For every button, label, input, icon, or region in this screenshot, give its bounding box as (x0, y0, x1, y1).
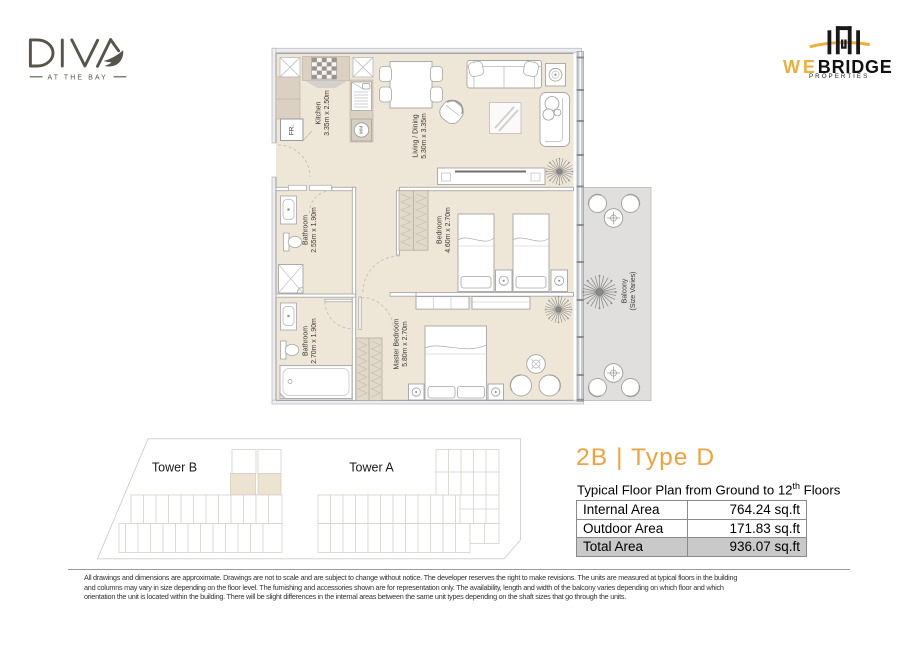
svg-text:Balcony: Balcony (622, 278, 629, 303)
svg-text:Master Bedroom: Master Bedroom (394, 318, 401, 369)
svg-text:Bathroom: Bathroom (303, 326, 310, 356)
svg-text:3.35m x 2.50m: 3.35m x 2.50m (324, 90, 331, 136)
svg-text:FR.: FR. (288, 125, 295, 136)
svg-text:Bathroom: Bathroom (303, 215, 310, 245)
svg-text:(Size Varies): (Size Varies) (630, 272, 637, 311)
svg-text:Tower B: Tower B (152, 461, 197, 475)
svg-text:Bedroom: Bedroom (437, 216, 444, 244)
svg-text:5.30m x 3.35m: 5.30m x 3.35m (421, 113, 428, 159)
svg-text:2.70m x 1.90m: 2.70m x 1.90m (311, 318, 318, 364)
svg-text:Tower A: Tower A (349, 461, 394, 475)
svg-text:5.80m x 2.70m: 5.80m x 2.70m (402, 321, 409, 367)
svg-text:2.55m x 1.90m: 2.55m x 1.90m (311, 207, 318, 253)
svg-text:Living / Dining: Living / Dining (413, 114, 420, 157)
svg-text:4.60m x 2.70m: 4.60m x 2.70m (445, 207, 452, 253)
svg-text:WM: WM (359, 126, 364, 134)
svg-text:Kitchen: Kitchen (316, 101, 323, 124)
